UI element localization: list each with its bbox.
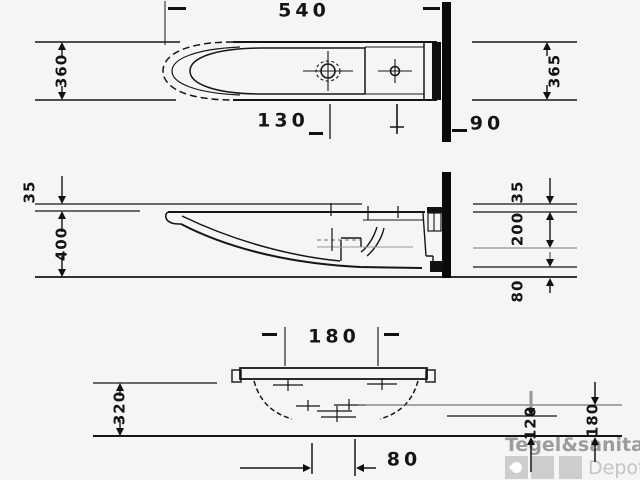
front-lip [166, 212, 181, 224]
dim-overall-height: 400 [55, 227, 70, 261]
tap-hole-symbol [378, 59, 412, 83]
front-view [93, 327, 622, 476]
side-view [35, 172, 577, 293]
drain-symbol [303, 51, 353, 91]
dim-drain-offset: 80 [387, 451, 421, 470]
dim-tap-to-wall: 90 [470, 115, 504, 134]
dim-inlet-height: 180 [586, 403, 601, 437]
tap-hole-cross-left [273, 379, 303, 391]
dim-depth-right: 365 [548, 54, 563, 88]
technical-drawing-bidet: Tegel&sanitair Depot [0, 0, 640, 480]
wall-section-top [442, 2, 451, 142]
dim-drain-to-tap: 130 [257, 112, 309, 131]
trap-curves [361, 227, 384, 256]
dim-rim-band-right: 35 [511, 181, 526, 204]
dim-rim-to-outlet: 200 [511, 212, 526, 246]
drain-centre-mark [317, 406, 356, 422]
dim-outlet-height: 120 [524, 406, 539, 440]
dim-depth-left: 360 [55, 54, 70, 88]
dim-bowl-height: 320 [113, 391, 128, 425]
trap-front [341, 238, 361, 261]
rim-bar [240, 368, 427, 379]
wall-section-middle [442, 172, 451, 278]
dim-outlet-to-base: 80 [511, 280, 526, 303]
dim-tap-centres: 180 [308, 328, 360, 347]
dim-overall-width: 540 [278, 2, 330, 21]
dim-rim-band-left: 35 [23, 181, 38, 204]
drawing-canvas [0, 0, 640, 480]
back-plate [432, 42, 441, 100]
